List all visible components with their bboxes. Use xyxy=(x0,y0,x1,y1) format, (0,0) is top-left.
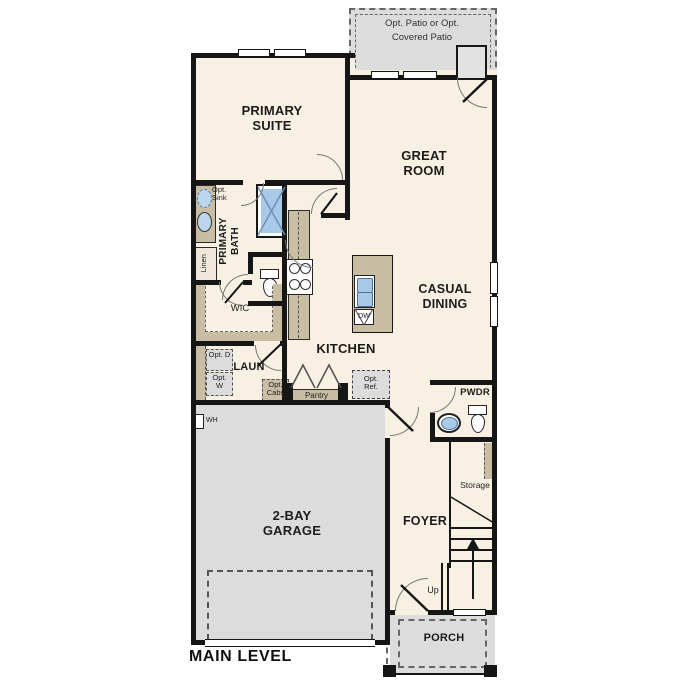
room-label-foyer: FOYER xyxy=(400,514,450,529)
wic-door-leaf xyxy=(225,282,243,303)
annotation-opt-patio: Opt. Patio or Opt. Covered Patio xyxy=(374,17,470,46)
annotation-opt-washer: Opt. W xyxy=(208,374,231,391)
shower-x-icon xyxy=(258,187,285,235)
plan-title: MAIN LEVEL xyxy=(189,648,299,667)
room-label-wic: WIC xyxy=(224,304,256,315)
room-label-laundry: LAUN xyxy=(231,361,267,374)
room-label-storage: Storage xyxy=(455,481,495,491)
room-label-powder: PWDR xyxy=(455,387,495,398)
pantry-bifold-doors xyxy=(291,365,341,388)
room-label-porch: PORCH xyxy=(414,632,474,645)
room-label-pantry: Pantry xyxy=(290,390,343,401)
room-label-primary-bath: PRIMARY BATH xyxy=(218,211,242,271)
annotation-up: Up xyxy=(422,585,444,595)
room-label-casual-dining: CASUAL DINING xyxy=(408,282,482,312)
garage-entry-door-leaf xyxy=(388,407,413,431)
room-label-kitchen: KITCHEN xyxy=(306,341,386,356)
annotation-opt-ref: Opt. Ref. xyxy=(359,375,383,392)
floor-plan: PRIMARY SUITE GREAT ROOM CASUAL DINING K… xyxy=(0,0,687,687)
room-label-primary-suite: PRIMARY SUITE xyxy=(222,103,322,134)
stair-break-line xyxy=(451,497,494,523)
annotation-dishwasher: DW xyxy=(354,313,374,321)
annotation-water-heater: WH xyxy=(206,417,224,425)
annotation-opt-cabs: Opt. Cabs xyxy=(264,381,287,398)
annotation-opt-sink: Opt. Sink xyxy=(212,186,238,203)
room-label-linen: Linen xyxy=(200,246,208,280)
annotation-opt-dryer: Opt. D xyxy=(208,351,231,359)
patio-door-leaf xyxy=(463,79,487,102)
room-label-garage: 2-BAY GARAGE xyxy=(247,508,337,539)
hall-door-leaf xyxy=(321,193,337,214)
room-label-great-room: GREAT ROOM xyxy=(394,148,454,179)
